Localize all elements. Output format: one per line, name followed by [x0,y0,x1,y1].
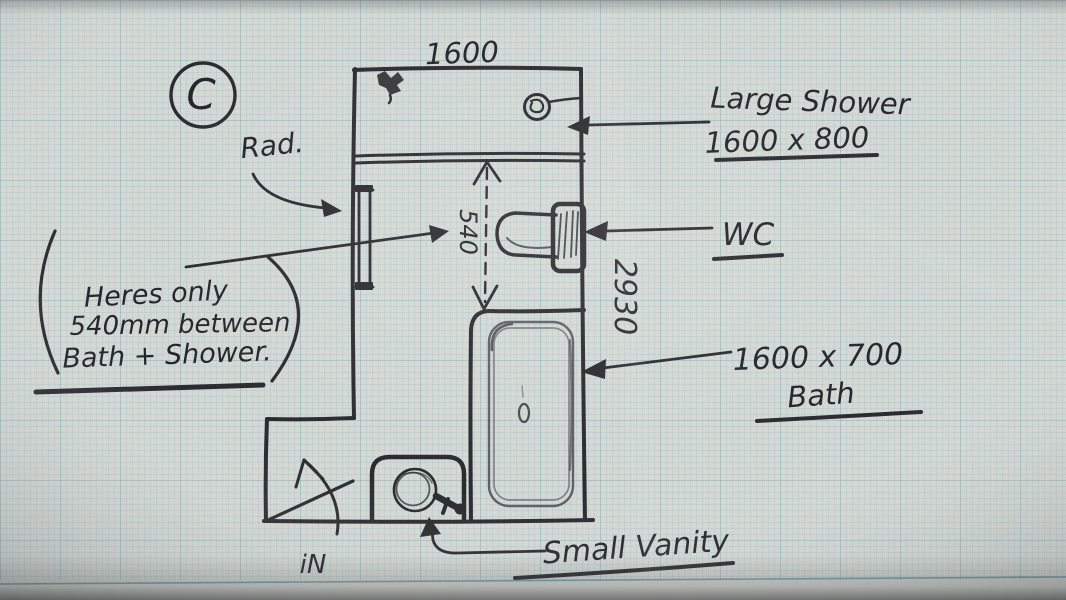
dimension-top-width: 1600 [424,35,499,72]
large-shower-text: Large Shower [710,81,912,122]
radiator-label: Rad. [239,126,305,165]
photo-of-hand-drawn-floor-plan: C 1600 Rad. Heres only 540mm between Bat… [0,0,1066,600]
sketch-canvas: C 1600 Rad. Heres only 540mm between Bat… [0,0,1066,600]
plan-circle-label: C [186,70,216,119]
large-shower-size: 1600 x 800 [704,120,870,160]
entrance-label: iN [300,550,327,580]
gap-dimension-value: 540 [454,209,482,255]
wc-text: WC [722,217,775,253]
bath-text: Bath [786,376,856,415]
room-height-dimension: 2930 [607,259,642,335]
bath-size-text: 1600 x 700 [732,337,904,378]
